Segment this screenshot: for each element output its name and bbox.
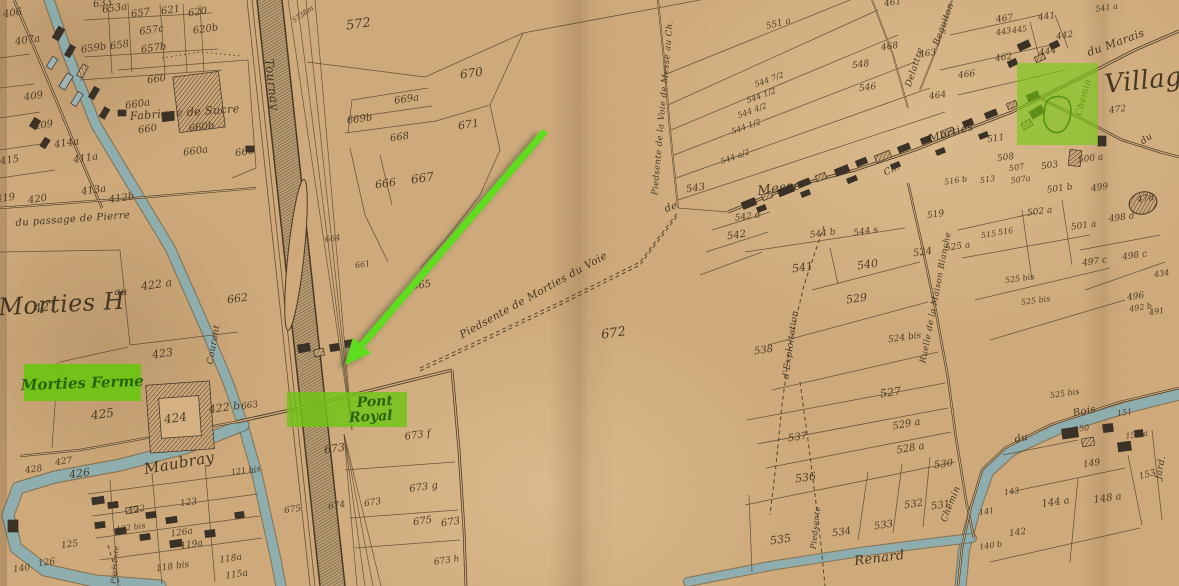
building (1098, 136, 1106, 146)
building (92, 496, 105, 505)
building (329, 343, 339, 351)
highlight-box-village (1017, 63, 1098, 145)
building (95, 521, 106, 528)
building (1102, 423, 1113, 432)
building (1082, 437, 1095, 447)
place-label: au (114, 287, 127, 298)
building (1117, 441, 1131, 452)
building (146, 511, 157, 518)
building (118, 110, 126, 116)
map-canvas[interactable]: 633653a657621620620b657c657b658659b40640… (0, 0, 1179, 586)
building (166, 516, 178, 523)
building (313, 348, 324, 357)
building (8, 520, 18, 532)
map-viewport: 633653a657621620620b657c657b658659b40640… (0, 0, 1179, 586)
highlight-label-royal: Royal (348, 408, 393, 426)
building (108, 501, 119, 508)
building (205, 529, 216, 537)
building (140, 533, 151, 540)
building (235, 511, 245, 518)
building (297, 343, 310, 353)
